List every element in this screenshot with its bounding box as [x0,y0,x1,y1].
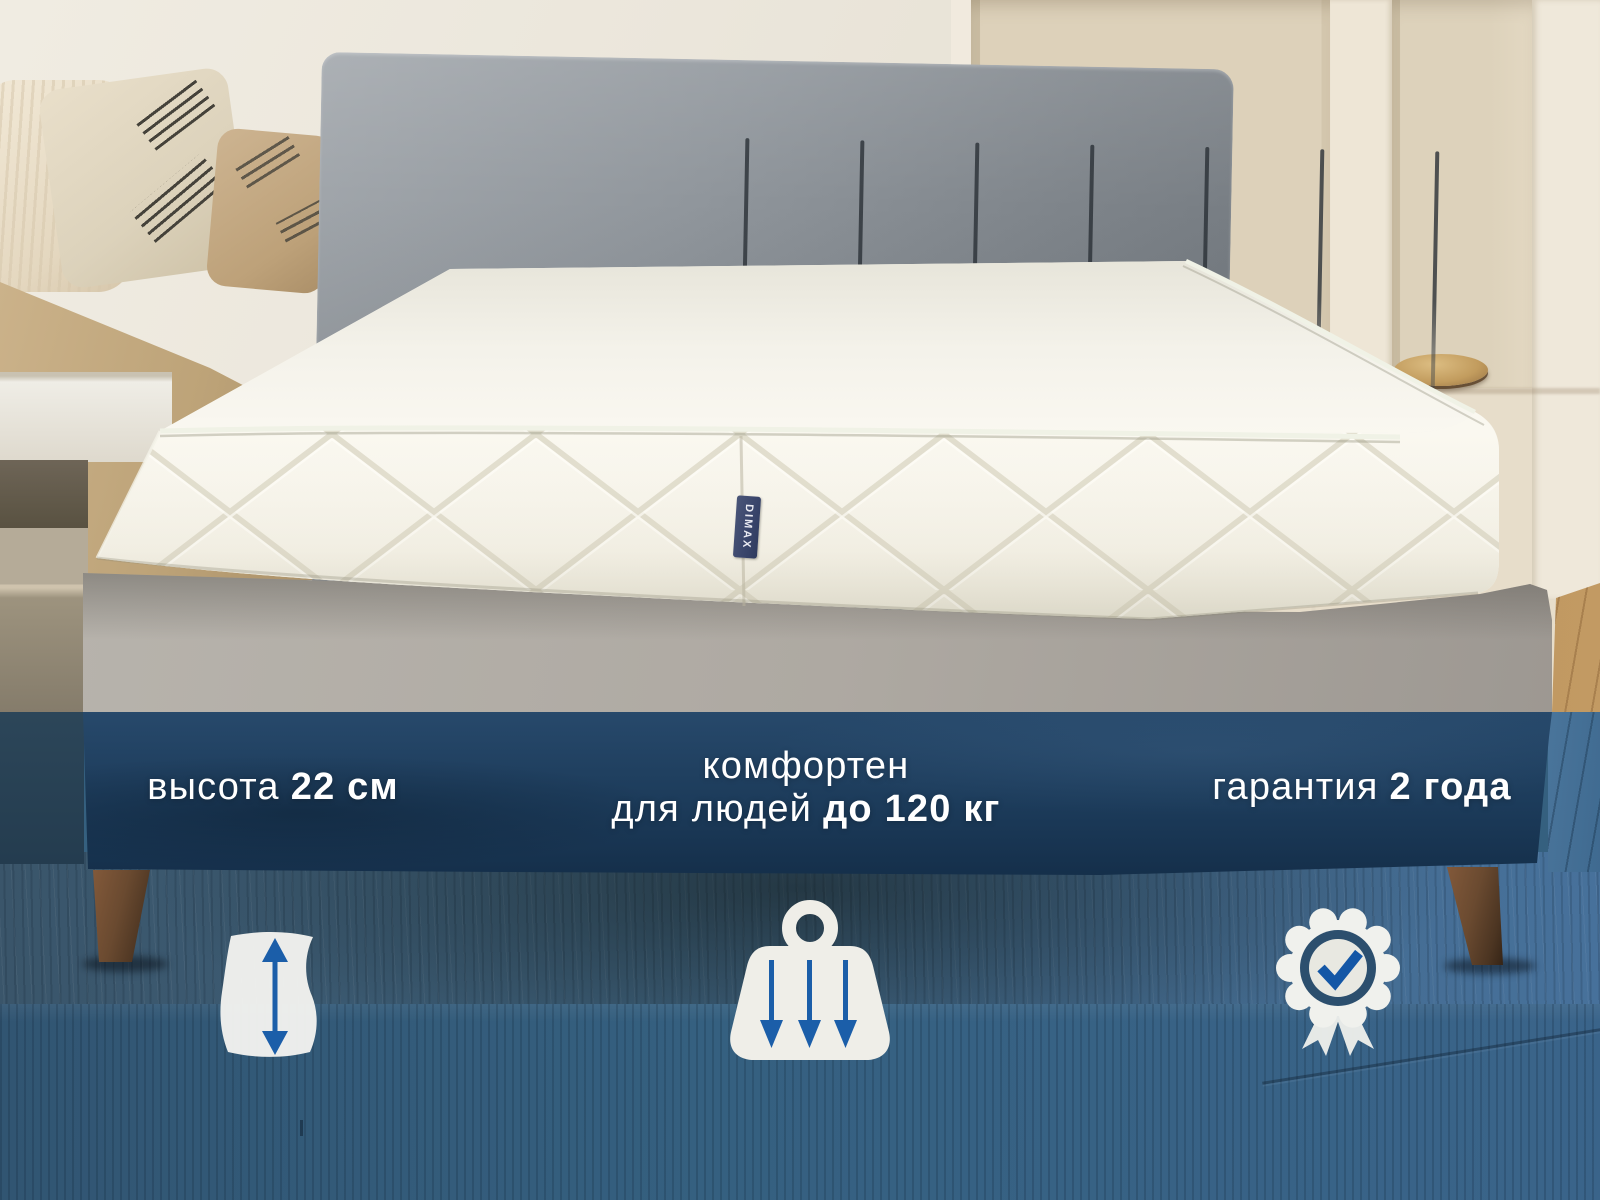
product-photo-stage: DIMAX высота22 см комфортен для людейдо … [0,0,1600,1200]
wood-slice-decor [1394,354,1488,386]
mattress-height-arrow-icon [213,928,341,1066]
headboard-seam [1196,147,1209,617]
warranty-feature-text: гарантия2 года [1212,766,1511,809]
height-value: 22 см [291,766,399,808]
weight-feature-text: комфортен для людейдо 120 кг [611,745,1000,831]
floor-shadow [0,712,84,864]
weight-load-arrows-icon [728,898,896,1066]
weight-line1: комфортен [611,745,1000,788]
headboard-seam [851,140,864,610]
wood-floor-tinted [1548,712,1600,872]
warranty-label: гарантия [1212,766,1378,808]
award-badge-check-icon [1268,898,1408,1068]
bench-shadow [0,460,88,534]
brand-tag: DIMAX [733,495,761,559]
height-label: высота [147,766,280,808]
wall-pillar-right [1532,0,1600,600]
bench-drawer [0,372,172,462]
plank-joint [300,1120,303,1136]
wall-niche-decor [1392,0,1532,388]
warranty-value: 2 года [1390,766,1512,808]
wood-step [0,528,88,712]
height-feature-text: высота22 см [147,766,399,809]
wall-pillar [1330,0,1392,600]
headboard [311,52,1233,617]
weight-line2-value: до 120 кг [823,788,1001,830]
weight-line2-label: для людей [611,788,812,830]
shelf-shadow [1232,388,1600,394]
brand-tag-label: DIMAX [740,504,754,550]
headboard-seam [1081,145,1094,615]
headboard-seam [966,143,979,613]
